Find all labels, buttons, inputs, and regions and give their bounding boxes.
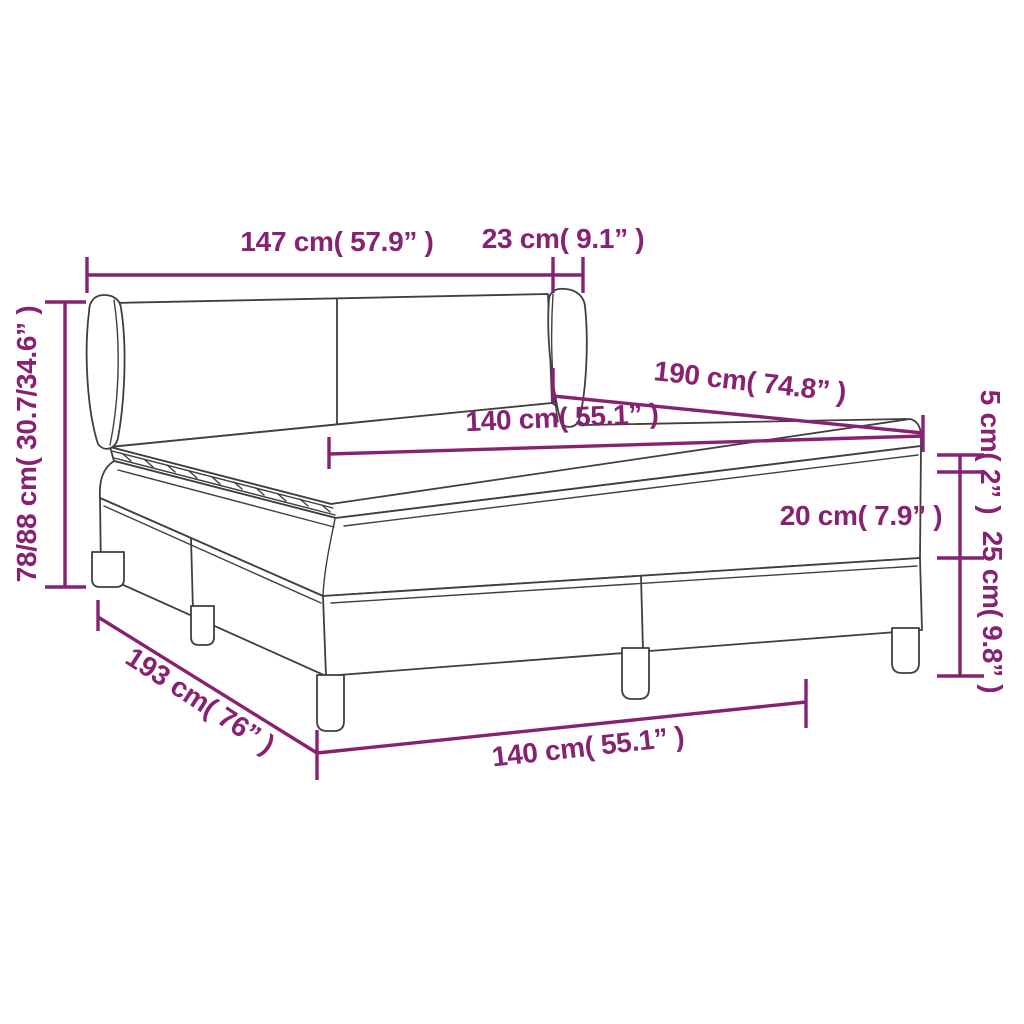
dim-headboard-width-label: 147 cm( 57.9” ) (240, 226, 433, 258)
dim-headboard-width-line (87, 257, 553, 293)
dim-wing-depth-label: 23 cm( 9.1” ) (482, 223, 645, 255)
bed-leg (191, 606, 214, 645)
diagram-canvas: 147 cm( 57.9” ) 23 cm( 9.1” ) 78/88 cm( … (0, 0, 1024, 1024)
bed-leg (622, 648, 649, 699)
dim-bed-height-line (45, 302, 86, 587)
bed-leg (92, 552, 124, 587)
dim-base-height-label: 25 cm( 9.8” ) (976, 531, 1008, 694)
dim-wing-depth-line (553, 257, 583, 293)
dim-topper-height-label: 5 cm( 2” ) (974, 390, 1006, 515)
dim-bed-height-label: 78/88 cm( 30.7/34.6” ) (11, 306, 43, 583)
bed-leg (317, 675, 344, 731)
bed-leg (892, 628, 919, 673)
dim-mattress-height-label: 20 cm( 7.9” ) (780, 500, 943, 532)
headboard-left-wing (87, 295, 125, 449)
